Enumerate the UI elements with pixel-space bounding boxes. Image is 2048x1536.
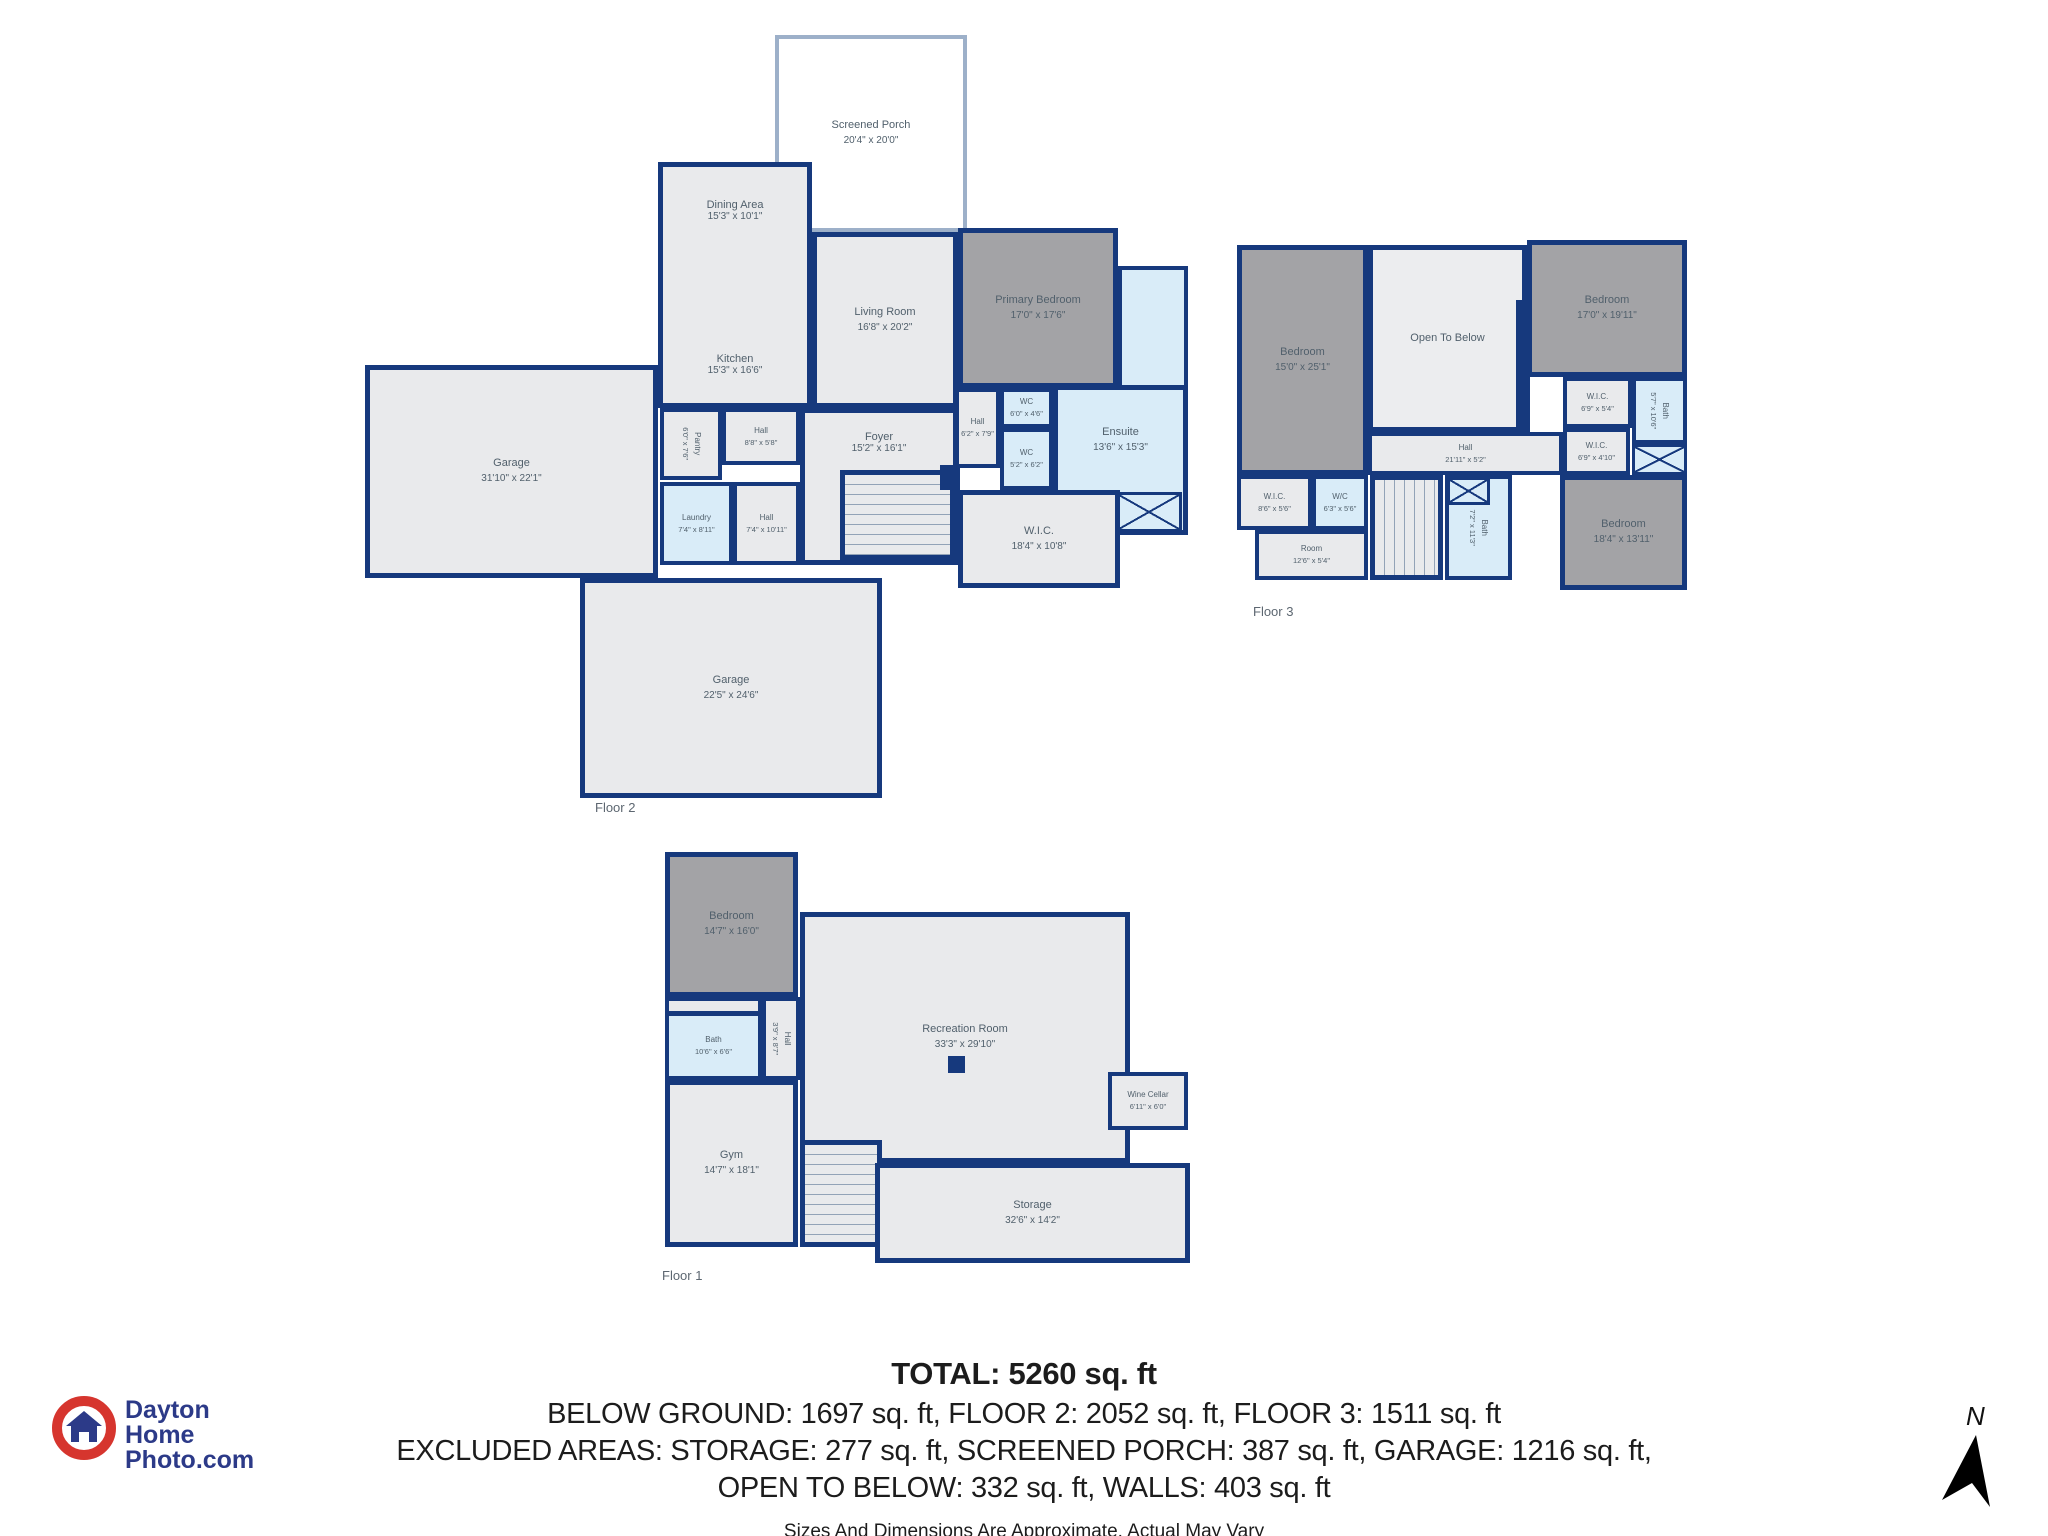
support-post [948,1056,965,1073]
floor-2-label: Floor 2 [595,800,635,815]
room-recreation: Recreation Room 33'3" x 29'10" [800,912,1130,1163]
room-storage: Storage 32'6" x 14'2" [875,1163,1190,1263]
room-hall-mid: Hall 8'8" x 5'8" [722,408,800,465]
room-wc-lower: WC 5'2" x 6'2" [1000,428,1053,490]
room-dining-area: Dining Area 15'3" x 10'1" [663,199,807,222]
stairs-foyer [840,470,955,560]
room-hall-basement: Hall 3'9" x 8'7" [762,997,800,1080]
room-primary-bedroom: Primary Bedroom 17'0" x 17'6" [958,228,1118,388]
room-open-to-below: Open To Below [1368,245,1527,432]
room-wc-top: WC 6'0" x 4'6" [1000,388,1053,428]
room-room-3: Room 12'6" x 5'4" [1255,530,1368,580]
shower-icon [1116,492,1182,532]
stairs-basement [800,1140,882,1247]
room-wic-2: W.I.C. 6'9" x 4'10" [1563,428,1630,475]
room-wic-primary: W.I.C. 18'4" x 10'8" [958,490,1120,588]
room-name: Screened Porch [832,119,911,133]
shower-icon [1447,477,1490,505]
area-summary: TOTAL: 5260 sq. ft BELOW GROUND: 1697 sq… [0,1356,2048,1536]
room-bedroom-right: Bedroom 17'0" x 19'11" [1527,240,1687,377]
room-foyer-label: Foyer 15'2" x 16'1" [805,431,953,454]
room-bath-right: Bath 5'7" x 10'6" [1632,377,1687,444]
total-area: TOTAL: 5260 sq. ft [0,1356,2048,1392]
room-hall-primary: Hall 6'2" x 7'9" [955,388,1000,468]
disclaimer: Sizes And Dimensions Are Approximate. Ac… [0,1521,2048,1536]
room-kitchen: Kitchen 15'3" x 16'6" [663,353,807,376]
stairs-floor-3 [1370,475,1443,580]
wall-block [1516,300,1530,432]
wall-block [940,465,960,490]
room-bedroom-bottom-right: Bedroom 18'4" x 13'11" [1560,475,1687,590]
room-wc-3: W/C 6'3" x 5'6" [1312,475,1368,530]
room-wine-cellar: Wine Cellar 6'11" x 6'0" [1108,1072,1188,1130]
floor-areas: BELOW GROUND: 1697 sq. ft, FLOOR 2: 2052… [0,1398,2048,1431]
room-bedroom-basement: Bedroom 14'7" x 16'0" [665,852,798,997]
room-garage-lower: Garage 22'5" x 24'6" [580,578,882,798]
room-living-room: Living Room 16'8" x 20'2" [812,232,958,408]
room-gym: Gym 14'7" x 18'1" [665,1080,798,1247]
room-wic-3: W.I.C. 8'6" x 5'6" [1237,475,1312,530]
room-bedroom-left: Bedroom 15'0" x 25'1" [1237,245,1368,475]
compass-needle-icon [1930,1395,2020,1520]
room-garage-main: Garage 31'10" x 22'1" [365,365,658,578]
north-arrow: N [1930,1395,2020,1520]
room-pantry: Pantry 6'0" x 7'6" [660,408,722,480]
room-wic-1: W.I.C. 6'9" x 5'4" [1563,377,1632,428]
excluded-areas-2: OPEN TO BELOW: 332 sq. ft, WALLS: 403 sq… [0,1472,2048,1505]
room-bath-basement: Bath 10'6" x 6'6" [665,1012,762,1080]
room-dining-kitchen: Dining Area 15'3" x 10'1" Kitchen 15'3" … [658,162,812,408]
room-laundry: Laundry 7'4" x 8'11" [660,482,733,565]
room-hall-3: Hall 21'11" x 5'2" [1368,432,1563,475]
floor-3-label: Floor 3 [1253,604,1293,619]
excluded-areas-1: EXCLUDED AREAS: STORAGE: 277 sq. ft, SCR… [0,1435,2048,1468]
room-ensuite-vanity [1118,266,1188,392]
dayton-home-photo-logo: Dayton Home Photo.com [52,1396,254,1473]
floor-plan-page: Screened Porch 20'4" x 20'0" Garage 31'1… [0,0,2048,1536]
logo-text: Dayton Home Photo.com [125,1398,254,1473]
room-dims: 20'4" x 20'0" [832,135,911,148]
floor-1-label: Floor 1 [662,1268,702,1283]
shower-icon [1632,444,1687,475]
camera-house-icon [52,1396,116,1460]
room-hall-lower: Hall 7'4" x 10'11" [733,482,800,565]
